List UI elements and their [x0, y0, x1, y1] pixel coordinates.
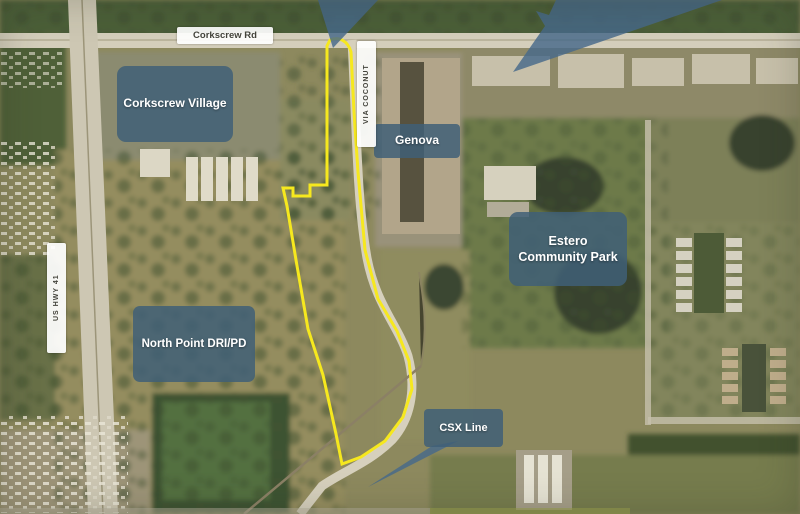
label-genova: Genova — [374, 124, 460, 158]
parking-lot — [0, 52, 62, 88]
warehouse — [552, 455, 562, 503]
terrain-patch — [0, 508, 430, 514]
label-text: North Point DRI/PD — [142, 337, 247, 352]
warehouse — [231, 157, 243, 201]
pond — [729, 115, 795, 171]
label-corkscrew-rd: Corkscrew Rd — [177, 27, 273, 44]
local-road — [645, 120, 651, 425]
aerial-map: Corkscrew Village Genova Estero Communit… — [0, 0, 800, 514]
label-via-coconut: VIA COCONUT — [357, 41, 376, 147]
pond — [424, 264, 464, 310]
warehouse — [538, 455, 548, 503]
label-csx-line: CSX Line — [424, 409, 503, 447]
terrain-patch — [430, 455, 800, 514]
mobile-home-park — [0, 415, 128, 513]
label-text: Genova — [395, 133, 439, 149]
label-text: Corkscrew Village — [123, 96, 226, 112]
label-estero-community-park: Estero Community Park — [509, 212, 627, 286]
label-text: CSX Line — [439, 421, 487, 435]
warehouse — [246, 157, 258, 201]
warehouse — [201, 157, 213, 201]
label-text: VIA COCONUT — [363, 64, 370, 124]
local-road — [648, 417, 800, 424]
label-text: Corkscrew Rd — [193, 30, 257, 41]
building — [140, 149, 170, 177]
label-north-point-dri-pd: North Point DRI/PD — [133, 306, 255, 382]
label-text: US HWY 41 — [53, 275, 60, 322]
terrain-patch — [430, 508, 630, 514]
rec-center-building — [484, 166, 536, 200]
warehouse — [524, 455, 534, 503]
label-us-hwy-41: US HWY 41 — [47, 243, 66, 353]
rv-park — [0, 140, 56, 256]
building — [692, 54, 750, 84]
building — [558, 54, 624, 88]
warehouse — [216, 157, 228, 201]
building — [756, 58, 798, 84]
residential-cluster — [722, 344, 786, 412]
warehouse — [186, 157, 198, 201]
label-corkscrew-village: Corkscrew Village — [117, 66, 233, 142]
building — [632, 58, 684, 86]
genova-building — [382, 222, 460, 234]
label-text: Estero Community Park — [513, 233, 623, 266]
